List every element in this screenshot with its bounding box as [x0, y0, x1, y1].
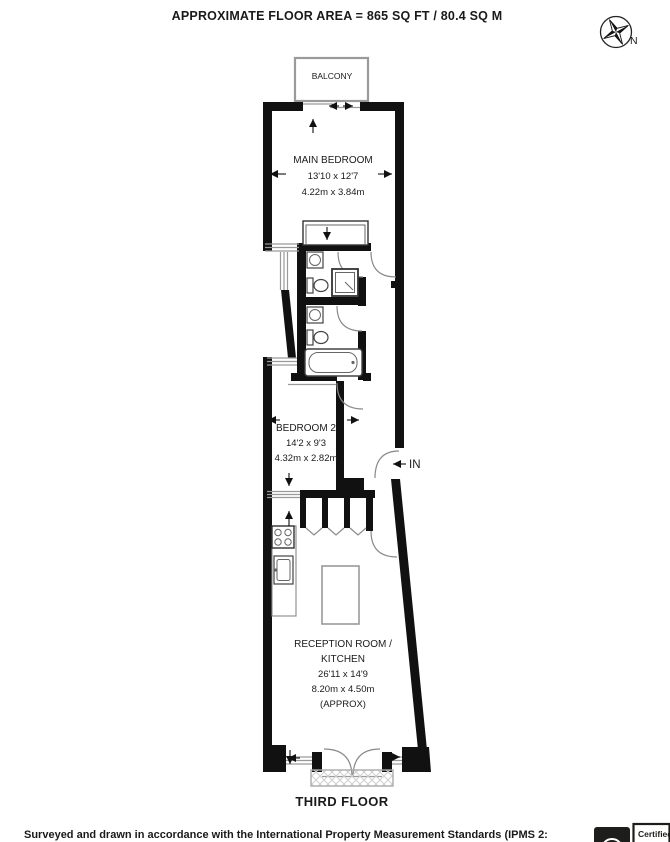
wall-frenchdoor-jamb-left [312, 752, 322, 772]
wardrobe [303, 221, 368, 245]
toilet-bathroom2 [307, 330, 328, 345]
floor-plan: APPROXIMATE FLOOR AREA = 865 SQ FT / 80.… [0, 0, 670, 842]
wall-left-slant [281, 290, 296, 358]
balcony: BALCONY [295, 58, 368, 101]
door-arc-bedroom [371, 252, 396, 277]
wall-bathblock-stub [363, 373, 371, 381]
floor-area-title: APPROXIMATE FLOOR AREA = 865 SQ FT / 80.… [172, 9, 503, 23]
compass-rose-icon: N [597, 13, 638, 51]
door-arc-reception [371, 531, 397, 557]
wall-bedroom-left [263, 102, 272, 251]
wall-hall-pier [340, 478, 364, 497]
bedroom2-metric: 4.32m x 2.82m [275, 453, 338, 464]
certified-badge-icon: Certified [594, 824, 670, 842]
closet-bifold-doors [306, 528, 366, 535]
closet-divider-4 [366, 498, 373, 531]
main-bedroom-name: MAIN BEDROOM [293, 155, 372, 166]
wall-right-upper [395, 102, 404, 448]
entrance-label: IN [409, 459, 421, 471]
badge-certified-label: Certified [638, 829, 670, 839]
balcony-label: BALCONY [312, 71, 353, 81]
closet-divider-1 [300, 498, 306, 528]
kitchen-sink [274, 556, 293, 584]
reception-metric: 8.20m x 4.50m [312, 684, 375, 695]
stove [272, 526, 294, 548]
floor-label: THIRD FLOOR [295, 794, 388, 809]
wall-left-lower [263, 357, 272, 772]
closet-divider-2 [322, 498, 328, 528]
shower [332, 269, 358, 296]
wall-frenchdoor-jamb-right [382, 752, 392, 772]
basin-bathroom2 [307, 307, 323, 323]
bedroom2-imperial: 14'2 x 9'3 [286, 438, 326, 449]
basin-bathroom1 [307, 252, 323, 268]
bedroom2-name: BEDROOM 2 [276, 423, 336, 434]
wall-bath-right-a [358, 277, 366, 306]
closet-divider-3 [344, 498, 350, 528]
footer: Surveyed and drawn in accordance with th… [24, 824, 670, 842]
reception-name-line1: RECEPTION ROOM / [294, 639, 392, 650]
main-bedroom-imperial: 13'10 x 12'7 [308, 171, 359, 182]
reception-imperial: 26'11 x 14'9 [318, 669, 368, 680]
wall-bottom-left-corner [263, 745, 286, 772]
window-bottom-right [392, 757, 402, 764]
wall-corridor-nib [391, 281, 395, 288]
window-left-slant [281, 252, 288, 290]
bathtub [305, 349, 362, 376]
wall-bath-divider [297, 297, 366, 305]
footer-disclaimer: Surveyed and drawn in accordance with th… [24, 829, 548, 841]
toilet-bathroom1 [307, 278, 328, 293]
juliet-balcony [311, 770, 393, 786]
kitchen-island [322, 566, 359, 624]
north-label: N [630, 35, 638, 47]
wall-bottom-right-corner [402, 747, 431, 772]
door-arc-bathroom2 [337, 306, 362, 331]
reception-name-line2: KITCHEN [321, 654, 365, 665]
reception-approx: (APPROX) [320, 699, 366, 710]
main-bedroom-metric: 4.22m x 3.84m [302, 187, 365, 198]
wall-right-slant [391, 479, 428, 760]
